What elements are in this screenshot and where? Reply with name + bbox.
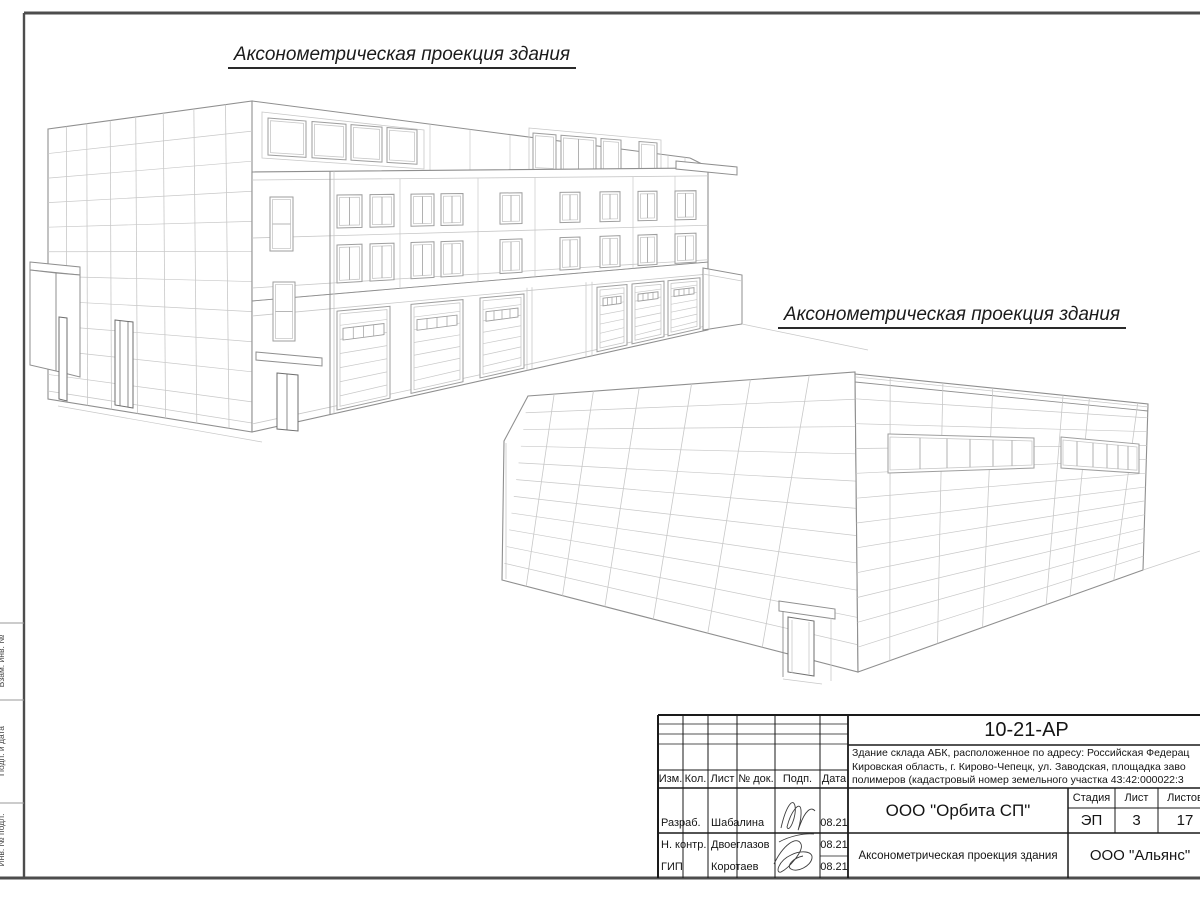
tb-role-gip: ГИП: [661, 856, 709, 877]
tb-date-developer: 08.21: [820, 812, 848, 833]
tb-drawing-title: Аксонометрическая проекция здания: [848, 833, 1068, 878]
tb-sheets-label: Листов: [1158, 788, 1200, 808]
tb-name-developer: Шабалина: [711, 812, 773, 833]
view-title-2: Аксонометрическая проекция здания: [778, 304, 1126, 329]
margin-label-vzam-inv: Взам. инв. №: [0, 633, 8, 689]
tb-sheet-label: Лист: [1115, 788, 1158, 808]
tb-description-line-1: Здание склада АБК, расположенное по адре…: [852, 747, 1200, 761]
tb-stage-value: ЭП: [1068, 808, 1115, 833]
tb-description-line-3: полимеров (кадастровый номер земельного …: [852, 774, 1200, 788]
tb-header-kol: Кол.: [683, 770, 708, 788]
tb-sheets-total: 17: [1158, 808, 1200, 833]
tb-header-data: Дата: [820, 770, 848, 788]
tb-header-list: Лист: [708, 770, 737, 788]
tb-header-izm: Изм.: [658, 770, 683, 788]
tb-date-ncontrol: 08.21: [820, 834, 848, 855]
tb-description-line-2: Кировская область, г. Кирово-Чепецк, ул.…: [852, 761, 1200, 775]
tb-header-podp: Подп.: [775, 770, 820, 788]
tb-doc-number: 10-21-АР: [848, 716, 1200, 745]
tb-stage-label: Стадия: [1068, 788, 1115, 808]
tb-name-gip: Коротаев: [711, 856, 773, 877]
tb-role-developer: Разраб.: [661, 812, 709, 833]
view-title-1: Аксонометрическая проекция здания: [228, 44, 576, 69]
margin-label-podp-data: Подп. и дата: [0, 723, 8, 779]
tb-name-ncontrol: Двоеглазов: [711, 834, 775, 855]
tb-object-description: Здание склада АБК, расположенное по адре…: [852, 747, 1200, 788]
margin-label-inv-podl: Инв. № подл.: [0, 812, 8, 868]
tb-date-gip: 08.21: [820, 856, 848, 877]
tb-role-ncontrol: Н. контр.: [661, 834, 711, 855]
tb-contractor: ООО "Альянс": [1068, 833, 1200, 878]
tb-company: ООО "Орбита СП": [848, 789, 1068, 833]
tb-sheet-number: 3: [1115, 808, 1158, 833]
drawing-sheet: Аксонометрическая проекция здания Аксоно…: [0, 0, 1200, 900]
tb-header-ndok: № док.: [737, 770, 775, 788]
